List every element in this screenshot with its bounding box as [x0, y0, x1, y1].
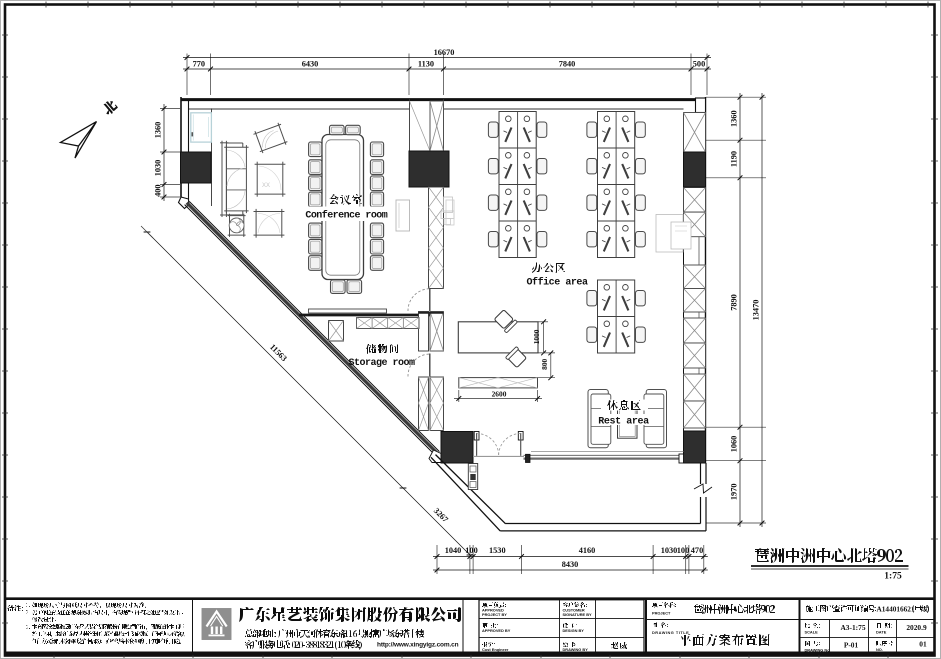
svg-text:800: 800: [540, 358, 549, 369]
svg-text:A3-1:75: A3-1:75: [840, 623, 865, 632]
svg-text:1030: 1030: [154, 160, 163, 177]
svg-text:01: 01: [919, 640, 927, 649]
svg-text:16670: 16670: [434, 48, 455, 57]
svg-text:SCALE: SCALE: [805, 630, 819, 635]
svg-text:DATE: DATE: [876, 630, 887, 635]
svg-text:2600: 2600: [492, 390, 507, 399]
svg-text:DRAWING No: DRAWING No: [805, 647, 831, 652]
svg-text:400: 400: [154, 184, 163, 196]
svg-text:500: 500: [693, 59, 705, 68]
svg-text:A144016621: A144016621: [877, 604, 915, 613]
svg-text:1130: 1130: [418, 59, 434, 68]
svg-text:1970: 1970: [730, 484, 739, 501]
svg-text:1060: 1060: [730, 436, 739, 453]
svg-text:NO.: NO.: [876, 647, 883, 652]
svg-text:4160: 4160: [579, 546, 596, 555]
svg-text:http://www.xingyigz.com.cn: http://www.xingyigz.com.cn: [377, 641, 459, 648]
svg-text:SIGNATURE BY: SIGNATURE BY: [563, 612, 593, 617]
svg-text:APPROVED BY: APPROVED BY: [482, 628, 511, 633]
svg-text:PROJECT BY: PROJECT BY: [482, 612, 507, 617]
svg-text:13470: 13470: [752, 300, 761, 321]
svg-text:100: 100: [465, 546, 477, 555]
svg-text:6430: 6430: [302, 59, 319, 68]
svg-text:DESIGN BY: DESIGN BY: [563, 628, 585, 633]
svg-text:Conference room: Conference room: [305, 209, 387, 221]
svg-text:1360: 1360: [730, 110, 739, 127]
svg-text:7890: 7890: [730, 294, 739, 311]
svg-text:1040: 1040: [445, 546, 462, 555]
svg-text:Cost Engineer: Cost Engineer: [482, 647, 509, 652]
svg-text:1190: 1190: [730, 151, 739, 167]
svg-text:PROJECT: PROJECT: [652, 611, 671, 616]
svg-text:1360: 1360: [154, 122, 163, 139]
svg-text:8430: 8430: [562, 560, 579, 569]
svg-text:Office area: Office area: [526, 276, 588, 288]
svg-text:P-01: P-01: [844, 641, 859, 650]
svg-text:7840: 7840: [559, 59, 576, 68]
svg-text:2020.9: 2020.9: [906, 623, 927, 632]
svg-text:1030: 1030: [661, 546, 678, 555]
svg-text:1000: 1000: [532, 329, 541, 344]
svg-text:770: 770: [193, 59, 205, 68]
svg-text:100: 100: [677, 546, 689, 555]
svg-text:DRAWING TITLE: DRAWING TITLE: [652, 630, 689, 635]
svg-text:470: 470: [691, 546, 703, 555]
svg-text:Storage room: Storage room: [348, 358, 415, 369]
svg-text:XX: XX: [262, 183, 270, 189]
svg-text:DRAWING BY: DRAWING BY: [563, 647, 589, 652]
svg-text:1:75: 1:75: [884, 572, 902, 582]
svg-text:Rest area: Rest area: [598, 416, 649, 427]
svg-text:1530: 1530: [489, 546, 506, 555]
